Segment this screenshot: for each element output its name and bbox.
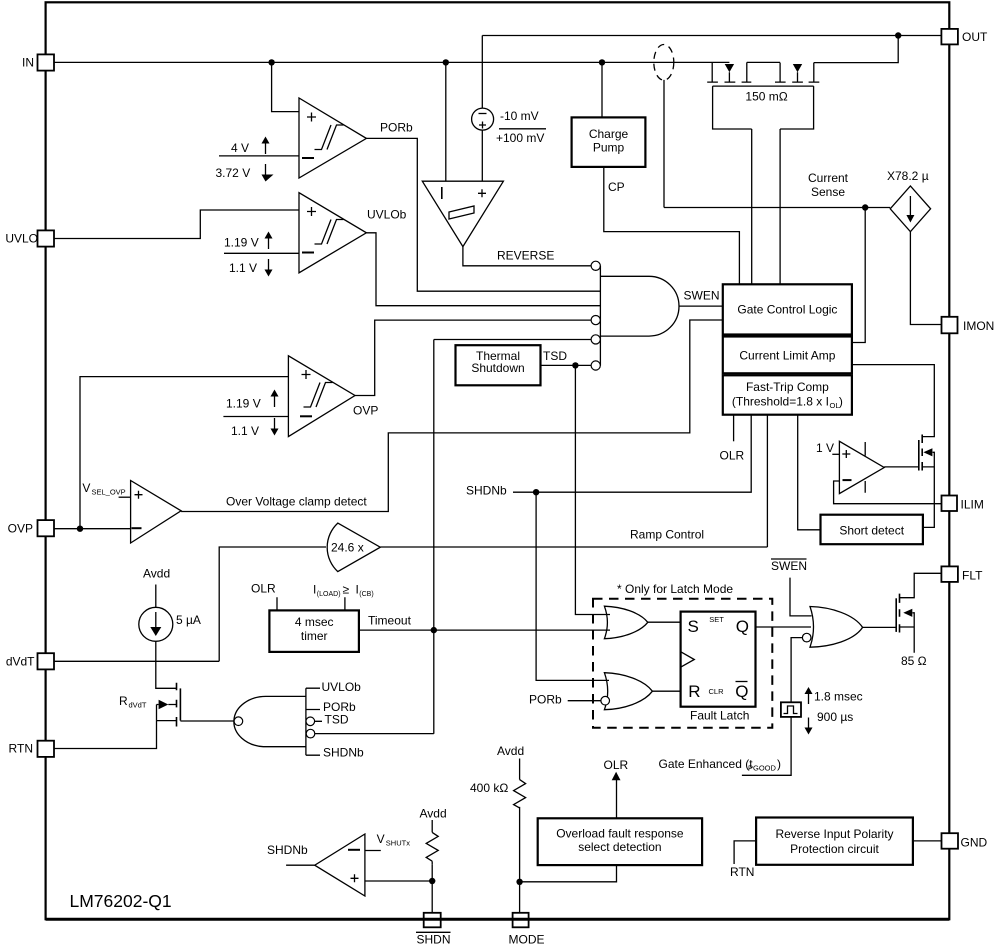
- svg-text:V: V: [377, 832, 385, 846]
- svg-text:OLR: OLR: [604, 758, 629, 772]
- svg-text:900 µs: 900 µs: [817, 710, 853, 724]
- svg-text:(LOAD): (LOAD): [317, 591, 341, 598]
- svg-text:RTN: RTN: [730, 865, 754, 879]
- svg-text:OVP: OVP: [8, 522, 33, 536]
- svg-text:Current: Current: [808, 171, 849, 185]
- svg-text:1.19 V: 1.19 V: [224, 235, 259, 249]
- svg-text:PORb: PORb: [529, 693, 562, 707]
- svg-text:OL: OL: [830, 401, 840, 410]
- svg-text:85 Ω: 85 Ω: [901, 654, 927, 668]
- svg-text:OLR: OLR: [720, 448, 745, 462]
- svg-text:5 µA: 5 µA: [176, 613, 201, 627]
- svg-text:Timeout: Timeout: [368, 614, 412, 628]
- svg-text:IMON: IMON: [963, 319, 994, 333]
- svg-text:1.1 V: 1.1 V: [231, 424, 259, 438]
- svg-text:Q: Q: [735, 682, 748, 701]
- svg-text:PGOOD: PGOOD: [748, 764, 777, 773]
- svg-text:24.6 x: 24.6 x: [331, 540, 364, 554]
- svg-text:RTN: RTN: [9, 742, 33, 756]
- svg-text:dVdT: dVdT: [129, 701, 147, 710]
- svg-text:4 msec: 4 msec: [295, 615, 334, 629]
- svg-text:CP: CP: [608, 180, 625, 194]
- svg-text:OVP: OVP: [353, 404, 378, 418]
- svg-text:IN: IN: [22, 55, 34, 69]
- svg-text:MODE: MODE: [509, 932, 545, 946]
- svg-text:Avdd: Avdd: [497, 744, 524, 758]
- svg-text:select detection: select detection: [578, 840, 661, 854]
- svg-text:Avdd: Avdd: [143, 567, 170, 581]
- svg-text:Charge: Charge: [589, 127, 629, 141]
- svg-text:CLR: CLR: [709, 687, 725, 696]
- svg-text:GND: GND: [961, 835, 988, 849]
- svg-text:FLT: FLT: [962, 568, 983, 582]
- svg-text:TSD: TSD: [325, 713, 349, 727]
- svg-text:PORb: PORb: [380, 120, 413, 134]
- svg-text:-10 mV: -10 mV: [500, 109, 539, 123]
- svg-text:Fast-Trip Comp: Fast-Trip Comp: [746, 380, 829, 394]
- svg-text:Ramp Control: Ramp Control: [630, 527, 704, 541]
- svg-text:R: R: [119, 694, 128, 708]
- svg-text:3.72 V: 3.72 V: [216, 166, 251, 180]
- svg-text:SHDNb: SHDNb: [323, 746, 364, 760]
- svg-text:Q: Q: [736, 617, 749, 636]
- svg-text:Shutdown: Shutdown: [471, 361, 524, 375]
- svg-text:≥: ≥: [343, 583, 350, 597]
- svg-text:Short detect: Short detect: [839, 524, 904, 538]
- svg-text:Reverse Input Polarity: Reverse Input Polarity: [775, 827, 893, 841]
- svg-text:): ): [777, 757, 781, 771]
- svg-text:+100 mV: +100 mV: [496, 131, 544, 145]
- svg-text:OUT: OUT: [962, 30, 988, 44]
- svg-text:Over Voltage clamp detect: Over Voltage clamp detect: [226, 495, 367, 509]
- svg-text:UVLOb: UVLOb: [367, 208, 407, 222]
- svg-text:1.1 V: 1.1 V: [229, 261, 257, 275]
- svg-text:SHDN: SHDN: [417, 932, 451, 946]
- svg-text:X78.2 µ: X78.2 µ: [887, 169, 929, 183]
- svg-text:UVLO: UVLO: [5, 232, 38, 246]
- svg-text:OLR: OLR: [251, 582, 276, 596]
- svg-text:UVLOb: UVLOb: [322, 680, 362, 694]
- svg-text:150 mΩ: 150 mΩ: [745, 90, 787, 104]
- svg-text:SEL_OVP: SEL_OVP: [92, 488, 126, 497]
- svg-text:ILIM: ILIM: [961, 497, 984, 511]
- svg-text:400 kΩ: 400 kΩ: [470, 781, 508, 795]
- svg-text:Pump: Pump: [593, 141, 625, 155]
- svg-text:SHDNb: SHDNb: [466, 483, 507, 497]
- svg-text:Avdd: Avdd: [420, 807, 447, 821]
- svg-text:timer: timer: [301, 629, 328, 643]
- svg-text:(Threshold=1.8 x I ): (Threshold=1.8 x I ): [732, 394, 843, 408]
- svg-text:Current Limit Amp: Current Limit Amp: [739, 348, 835, 362]
- svg-text:SWEN: SWEN: [771, 559, 807, 573]
- svg-text:SHUTx: SHUTx: [386, 838, 410, 847]
- svg-text:(CB): (CB): [359, 591, 373, 598]
- svg-text:V: V: [82, 481, 90, 495]
- svg-text:SHDNb: SHDNb: [267, 843, 308, 857]
- svg-text:1.19 V: 1.19 V: [226, 397, 261, 411]
- svg-text:REVERSE: REVERSE: [497, 249, 554, 263]
- svg-text:SWEN: SWEN: [684, 289, 720, 303]
- svg-text:Overload fault response: Overload fault response: [556, 826, 684, 840]
- svg-text:1 V: 1 V: [816, 441, 834, 455]
- svg-text:TSD: TSD: [543, 349, 567, 363]
- svg-text:Gate Control Logic: Gate Control Logic: [737, 302, 837, 316]
- svg-text:* Only for Latch Mode: * Only for Latch Mode: [617, 582, 733, 596]
- svg-text:Gate Enhanced (t: Gate Enhanced (t: [659, 757, 754, 771]
- svg-text:S: S: [688, 617, 699, 636]
- svg-text:SET: SET: [709, 615, 724, 624]
- svg-text:R: R: [688, 682, 700, 701]
- svg-text:4 V: 4 V: [231, 141, 249, 155]
- svg-text:LM76202-Q1: LM76202-Q1: [70, 891, 172, 911]
- svg-text:Protection circuit: Protection circuit: [790, 842, 879, 856]
- svg-text:Sense: Sense: [811, 185, 845, 199]
- svg-text:dVdT: dVdT: [6, 655, 35, 669]
- svg-text:Fault Latch: Fault Latch: [690, 709, 749, 723]
- svg-text:1.8 msec: 1.8 msec: [814, 689, 863, 703]
